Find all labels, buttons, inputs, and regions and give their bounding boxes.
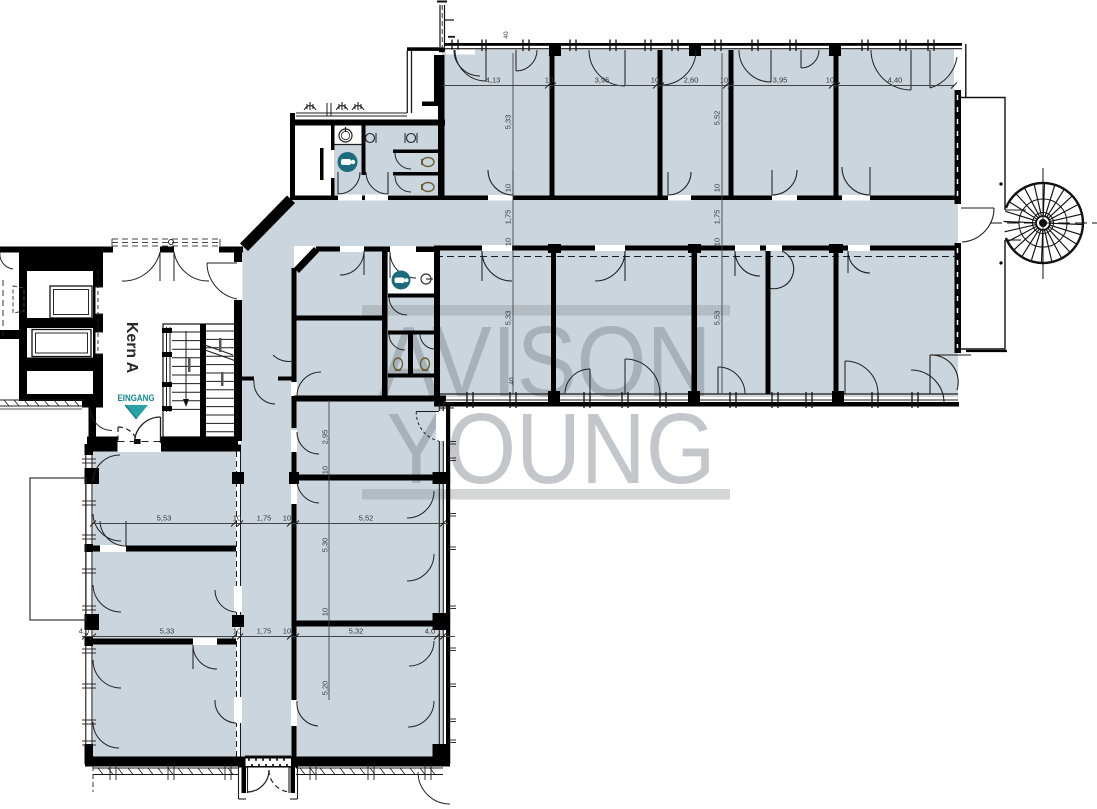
svg-text:4,0: 4,0 [79,627,90,636]
svg-text:4,13: 4,13 [486,76,501,85]
svg-text:4,40: 4,40 [888,76,903,85]
svg-text:Kern A: Kern A [123,322,140,373]
svg-text:5,20: 5,20 [321,681,330,696]
svg-text:1,75: 1,75 [257,627,272,636]
svg-text:10: 10 [545,76,553,85]
svg-text:10: 10 [713,184,722,192]
svg-text:5,33: 5,33 [504,311,513,326]
svg-text:3,95: 3,95 [595,76,610,85]
svg-text:10: 10 [283,627,291,636]
svg-text:2,95: 2,95 [321,430,330,445]
svg-text:1,75: 1,75 [257,514,272,523]
svg-text:5,52: 5,52 [359,514,374,523]
svg-text:YOUNG: YOUNG [387,393,716,505]
svg-text:2,60: 2,60 [684,76,699,85]
svg-text:3,95: 3,95 [773,76,788,85]
svg-text:4,0: 4,0 [425,627,436,636]
svg-text:5,30: 5,30 [321,538,330,553]
svg-text:10: 10 [504,184,513,192]
svg-text:5,53: 5,53 [157,514,172,523]
svg-text:40: 40 [503,31,510,39]
svg-text:10: 10 [233,627,241,636]
svg-text:10: 10 [713,238,722,246]
svg-text:10: 10 [826,76,834,85]
svg-text:10: 10 [504,238,513,246]
svg-text:10: 10 [283,514,291,523]
svg-text:5,53: 5,53 [713,311,722,326]
svg-text:1,75: 1,75 [713,210,722,225]
svg-text:5,32: 5,32 [349,627,364,636]
svg-text:10: 10 [720,76,728,85]
svg-text:10: 10 [233,514,241,523]
svg-text:EINGANG: EINGANG [118,393,155,403]
svg-text:40: 40 [509,377,516,385]
svg-text:5,52: 5,52 [713,111,722,126]
svg-text:10: 10 [321,608,330,616]
svg-text:5,33: 5,33 [504,115,513,130]
svg-text:5,33: 5,33 [160,627,175,636]
svg-text:10: 10 [651,76,659,85]
svg-text:1,75: 1,75 [504,210,513,225]
svg-text:10: 10 [321,466,330,474]
